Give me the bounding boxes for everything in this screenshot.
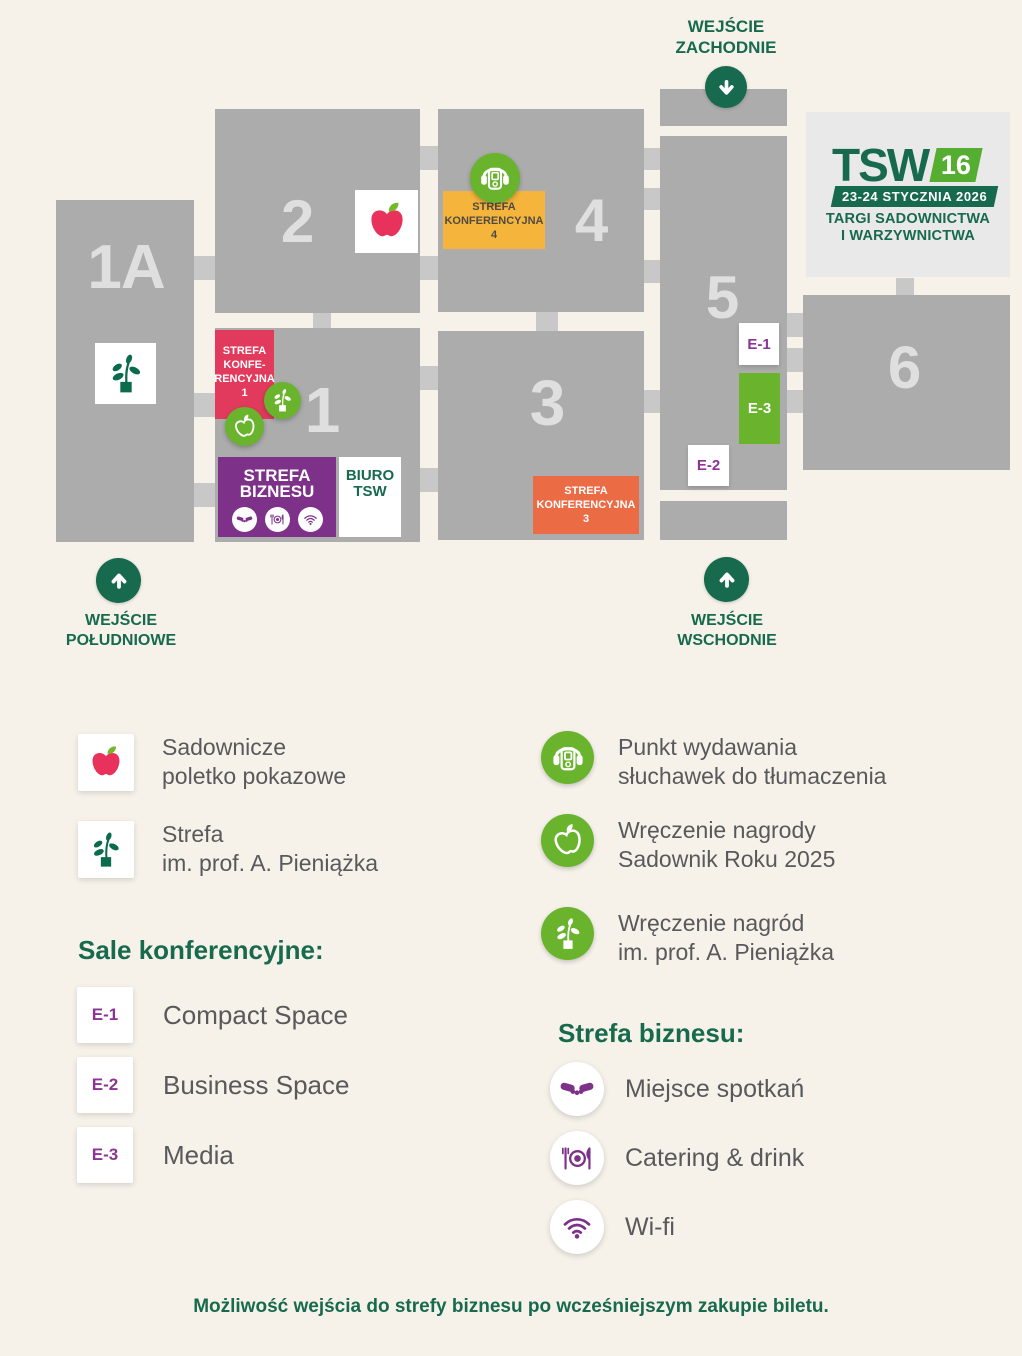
hall-1-label: 1 <box>305 378 340 442</box>
apple-icon <box>365 200 409 244</box>
entrance-label-line: POŁUDNIOWE <box>66 631 176 651</box>
office-label-line: TSW <box>353 484 386 500</box>
legend-pieniazek-tile <box>78 821 134 878</box>
arrow-up-icon <box>713 566 741 594</box>
legend-pieniazek-award-badge <box>541 907 594 960</box>
tsw-tagline-line: I WARZYWNICTWA <box>806 228 1010 245</box>
business-zone: STREFA BIZNESU <box>218 457 336 537</box>
tsw-logo: TSW 16 <box>832 142 979 188</box>
headphones-icon <box>478 161 512 195</box>
legend-text-line: Strefa <box>162 820 378 849</box>
corridor-connector <box>787 348 803 372</box>
award-apple-icon <box>231 413 259 441</box>
award-plant-icon <box>270 388 295 413</box>
legend-room-e2-name: Business Space <box>163 1057 349 1113</box>
legend-orchard-tile <box>78 734 134 791</box>
hall-4-label: 4 <box>575 191 607 251</box>
corridor-connector <box>536 312 558 331</box>
pieniazek-zone-marker <box>95 343 156 404</box>
office-label-line: BIURO <box>346 468 394 484</box>
legend-pieniazek-label: Strefa im. prof. A. Pieniążka <box>162 820 378 878</box>
east-entrance-corridor <box>660 501 787 540</box>
wifi-icon <box>298 507 323 532</box>
legend-text-line: im. prof. A. Pieniążka <box>618 938 834 967</box>
tsw-office: BIURO TSW <box>339 457 401 537</box>
entrance-label-line: WEJŚCIE <box>677 611 777 631</box>
orchard-plot-marker <box>355 190 418 253</box>
corridor-connector <box>644 390 660 413</box>
business-zone-icons <box>232 507 323 532</box>
zone-label-line: 4 <box>491 228 497 242</box>
room-e2: E-2 <box>688 445 729 486</box>
zone-label-line: KONFE- <box>223 358 265 372</box>
legend-text-line: im. prof. A. Pieniążka <box>162 849 378 878</box>
hall-3-label: 3 <box>530 371 565 435</box>
legend-wifi-label: Wi-fi <box>625 1200 675 1254</box>
zone-label-line: 1 <box>241 386 247 400</box>
legend-text-line: Sadownik Roku 2025 <box>618 845 835 874</box>
headphones-pickup-marker <box>470 153 520 203</box>
legend-room-e2-box: E-2 <box>77 1057 133 1113</box>
award-apple-icon <box>549 822 587 860</box>
corridor-connector <box>644 260 660 283</box>
south-entrance-marker <box>96 558 141 603</box>
legend-text-line: Wręczenie nagrody <box>618 816 835 845</box>
legend-sadownik-award-badge <box>541 814 594 867</box>
legend-catering-badge <box>550 1131 604 1185</box>
south-entrance-label: WEJŚCIE POŁUDNIOWE <box>66 611 176 651</box>
corridor-connector <box>420 366 438 390</box>
corridor-connector <box>896 278 914 295</box>
ticket-note: Możliwość wejścia do strefy biznesu po w… <box>0 1296 1022 1318</box>
conference-rooms-heading: Sale konferencyjne: <box>78 935 324 966</box>
zone-label-line: KONFERENCYJNA <box>536 498 635 512</box>
legend-text-line: słuchawek do tłumaczenia <box>618 762 886 791</box>
room-code: E-1 <box>92 1005 118 1025</box>
tsw-edition-number: 16 <box>941 150 971 181</box>
pieniazek-award-marker <box>264 382 301 419</box>
tsw-tagline: TARGI SADOWNICTWA I WARZYWNICTWA <box>806 211 1010 245</box>
tsw-tagline-line: TARGI SADOWNICTWA <box>806 211 1010 228</box>
legend-headphones-label: Punkt wydawania słuchawek do tłumaczenia <box>618 733 886 791</box>
legend-text-line: poletko pokazowe <box>162 762 346 791</box>
legend-room-e3-name: Media <box>163 1127 234 1183</box>
handshake-icon <box>232 507 257 532</box>
zone-label-line: 3 <box>583 512 589 526</box>
corridor-connector <box>420 256 438 280</box>
venue-map-poster: 1A 2 4 1 3 5 6 STREFA KONFERENCYJNA 4 ST… <box>0 0 1022 1356</box>
legend-handshake-badge <box>550 1062 604 1116</box>
hall-1a-label: 1A <box>87 237 164 299</box>
west-entrance-label: WEJŚCIE ZACHODNIE <box>675 16 776 58</box>
catering-icon <box>559 1140 596 1177</box>
entrance-label-line: WEJŚCIE <box>675 16 776 37</box>
corridor-connector <box>420 468 438 492</box>
legend-text-line: Wręczenie nagród <box>618 909 834 938</box>
room-code: E-2 <box>92 1075 118 1095</box>
room-e3-label: E-3 <box>748 400 771 417</box>
corridor-connector <box>194 483 215 507</box>
legend-headphones-badge <box>541 731 594 784</box>
apple-icon <box>87 744 125 782</box>
legend-room-e3-box: E-3 <box>77 1127 133 1183</box>
headphones-icon <box>550 740 586 776</box>
arrow-up-icon <box>105 567 133 595</box>
zone-label-line: STREFA <box>564 484 607 498</box>
legend-room-e1-name: Compact Space <box>163 987 348 1043</box>
legend-catering-label: Catering & drink <box>625 1131 804 1185</box>
room-e3: E-3 <box>739 373 780 444</box>
corridor-connector <box>787 390 803 413</box>
legend-text-line: Punkt wydawania <box>618 733 886 762</box>
catering-icon <box>265 507 290 532</box>
wifi-icon <box>559 1209 595 1245</box>
tsw-edition-badge: 16 <box>930 148 983 182</box>
room-code: E-3 <box>92 1145 118 1165</box>
entrance-label-line: ZACHODNIE <box>675 37 776 58</box>
tsw-dates-banner: 23-24 STYCZNIA 2026 <box>831 186 999 207</box>
corridor-connector <box>194 393 215 417</box>
hall-5-label: 5 <box>706 268 738 328</box>
plant-icon <box>105 353 147 395</box>
legend-sadownik-award-label: Wręczenie nagrody Sadownik Roku 2025 <box>618 816 835 874</box>
east-entrance-marker <box>704 557 749 602</box>
legend-room-e1-box: E-1 <box>77 987 133 1043</box>
tsw-logo-panel: TSW 16 23-24 STYCZNIA 2026 TARGI SADOWNI… <box>806 112 1010 277</box>
east-entrance-label: WEJŚCIE WSCHODNIE <box>677 611 777 651</box>
corridor-connector <box>644 188 660 210</box>
zone-label-line: STREFA <box>223 344 266 358</box>
plant-icon <box>87 831 125 869</box>
hall-6-label: 6 <box>888 338 920 398</box>
corridor-connector <box>420 146 438 170</box>
legend-orchard-label: Sadownicze poletko pokazowe <box>162 733 346 791</box>
room-e1-label: E-1 <box>747 336 770 353</box>
zone-label-line: RENCYJNA <box>214 372 275 386</box>
corridor-connector <box>313 313 331 328</box>
west-entrance-marker <box>705 66 747 108</box>
tsw-logo-text: TSW <box>832 142 928 188</box>
corridor-connector <box>787 313 803 337</box>
legend-meeting-label: Miejsce spotkań <box>625 1062 804 1116</box>
corridor-connector <box>194 256 215 280</box>
entrance-label-line: WEJŚCIE <box>66 611 176 631</box>
room-e2-label: E-2 <box>697 457 720 474</box>
business-zone-heading: Strefa biznesu: <box>558 1018 744 1049</box>
legend-wifi-badge <box>550 1200 604 1254</box>
conference-zone-3: STREFA KONFERENCYJNA 3 <box>533 476 639 534</box>
room-e1: E-1 <box>739 323 779 365</box>
hall-2-label: 2 <box>281 192 313 252</box>
legend-text-line: Sadownicze <box>162 733 346 762</box>
tsw-dates-text: 23-24 STYCZNIA 2026 <box>842 189 987 204</box>
award-plant-icon <box>551 917 585 951</box>
handshake-icon <box>559 1071 595 1107</box>
corridor-connector <box>644 148 660 170</box>
arrow-down-icon <box>713 74 740 101</box>
entrance-label-line: WSCHODNIE <box>677 631 777 651</box>
sadownik-award-marker <box>225 407 264 446</box>
zone-label-line: BIZNESU <box>240 484 315 500</box>
legend-pieniazek-award-label: Wręczenie nagród im. prof. A. Pieniążka <box>618 909 834 967</box>
zone-label-line: KONFERENCYJNA <box>444 214 543 228</box>
